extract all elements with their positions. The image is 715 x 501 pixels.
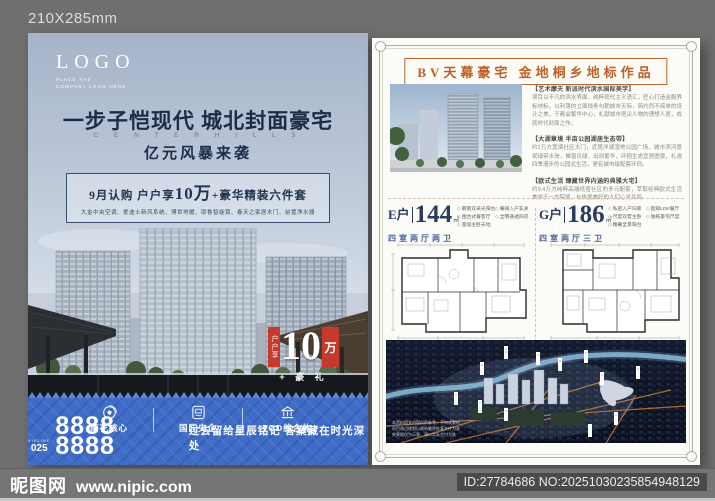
poster-subhead-en: C E N T E R H I L L S bbox=[28, 132, 368, 139]
unit-g-features: ◇私密入户归家 ◇超级LDK餐厅 ◇尺度双套主卧 ◇独栋豪宅尺度 ◇臻奢全景阳台 bbox=[608, 206, 684, 230]
aerial-masterplan-render: 本资料相关内容仅供参考，不构成要约 项目周边规划以政府最终批复文件为准 效果图仅… bbox=[386, 340, 686, 443]
dashed-divider bbox=[388, 198, 684, 199]
logo-sub-line1: PLACE THE bbox=[56, 77, 92, 82]
aerial-disclaimer: 本资料相关内容仅供参考，不构成要约 项目周边规划以政府最终批复文件为准 效果图仅… bbox=[392, 420, 460, 438]
frame-corner-ornament bbox=[375, 41, 386, 52]
watermark-bar: 昵图网 www.nipic.com ID:27784686 NO:2025103… bbox=[0, 468, 715, 501]
zigzag-border bbox=[28, 392, 368, 398]
frame-corner-ornament bbox=[686, 451, 697, 462]
area-code: 025 bbox=[31, 443, 48, 454]
copy-section: 【艺术摩天 新派时代滨水国际美学】 项目以不凡的滨水界面、纯粹现代主义语汇，匠心… bbox=[532, 84, 682, 128]
badge-suffix: + 豪 礼 bbox=[268, 370, 339, 383]
gift-badge: 户户享 10 万 + 豪 礼 bbox=[268, 327, 339, 383]
flyer-title: BV天幕豪宅 金地桐乡地标作品 bbox=[404, 58, 667, 85]
unit-e-floorplan bbox=[388, 240, 534, 342]
phone-number: 8888 8888 bbox=[55, 416, 176, 456]
hotline-label: VIPLINE bbox=[28, 438, 50, 443]
flyer-copy-column: 【艺术摩天 新派时代滨水国际美学】 项目以不凡的滨水界面、纯粹现代主义语汇，匠心… bbox=[532, 84, 682, 209]
offer-details: 大金中央空调、爱迪士新风系统、博世地暖、耶鲁智能锁、春天之家居木门、前置净水器 bbox=[71, 208, 325, 216]
artboard-size-label: 210X285mm bbox=[28, 10, 118, 27]
unit-e: E户 144 ㎡ · · · · · · · · 四室两厅两卫 ◇朝南双采光阳台… bbox=[388, 204, 533, 342]
offer-title: 9月认购 户户享10万+豪华精装六件套 bbox=[71, 179, 325, 204]
flyer-building-render bbox=[390, 84, 522, 172]
flyer-right-panel: BV天幕豪宅 金地桐乡地标作品 【艺术摩天 新派时代滨水国际美学】 bbox=[372, 38, 700, 465]
offer-big: 10万 bbox=[175, 184, 212, 203]
poster-slogan: 亿元风暴来袭 bbox=[28, 142, 368, 163]
unit-g: G户 186 ㎡ · · · · · · · · 四室两厅三卫 ◇私密入户归家 … bbox=[539, 204, 684, 342]
site-name: 昵图网 bbox=[10, 472, 67, 498]
unit-g-floorplan bbox=[539, 240, 685, 342]
poster-tagline: 过去留给星辰铭记 答案藏在时光深处 bbox=[189, 423, 368, 456]
badge-unit: 万 bbox=[322, 327, 339, 367]
frame-corner-ornament bbox=[375, 451, 386, 462]
badge-number: 10 bbox=[280, 327, 322, 367]
poster-left-panel: LOGO PLACE THE COMPANY LOGO HERE 一步子恺现代 … bbox=[28, 33, 368, 465]
offer-prefix: 9月认购 户户享 bbox=[89, 190, 175, 202]
logo-sub-line2: COMPANY LOGO HERE bbox=[56, 84, 127, 89]
offer-box: 9月认购 户户享10万+豪华精装六件套 大金中央空调、爱迪士新风系统、博世地暖、… bbox=[66, 173, 330, 223]
copy-section: 【大湖章境 半亩公园湖居生态带】 约2万方宽境社区大门，近揽洋湖湿地公园广场、城… bbox=[532, 134, 682, 170]
site-url: www.nipic.com bbox=[76, 479, 192, 497]
screenshot-stage: 210X285mm LOGO PLACE THE COMPANY LOGO HE… bbox=[0, 0, 715, 500]
badge-vertical-label: 户户享 bbox=[268, 327, 280, 367]
floorplan-section: E户 144 ㎡ · · · · · · · · 四室两厅两卫 ◇朝南双采光阳台… bbox=[388, 204, 684, 342]
image-id-box: ID:27784686 NO:20251030235854948129 bbox=[457, 473, 707, 491]
logo: LOGO PLACE THE COMPANY LOGO HERE bbox=[56, 51, 136, 91]
poster-headline: 一步子恺现代 城北封面豪宅 bbox=[28, 105, 368, 135]
poster-footer-bar: 雨花核心 国匠央企 TOD综合体 VIPLINE 025 8888 8 bbox=[28, 398, 368, 465]
unit-e-features: ◇朝南双采光阳台 ◇奢阔入户玄关 ◇围合式餐客厅 ◇全明通透四房 ◇宽境主卧天地 bbox=[457, 206, 533, 230]
offer-suffix: +豪华精装六件套 bbox=[212, 190, 307, 202]
logo-text: LOGO bbox=[56, 51, 136, 74]
site-brand: 昵图网 www.nipic.com bbox=[10, 472, 192, 498]
hotline-row: VIPLINE 025 8888 8888 过去留给星辰铭记 答案藏在时光深处 bbox=[28, 416, 368, 456]
dashed-divider-vertical bbox=[535, 208, 537, 342]
frame-corner-ornament bbox=[686, 41, 697, 52]
